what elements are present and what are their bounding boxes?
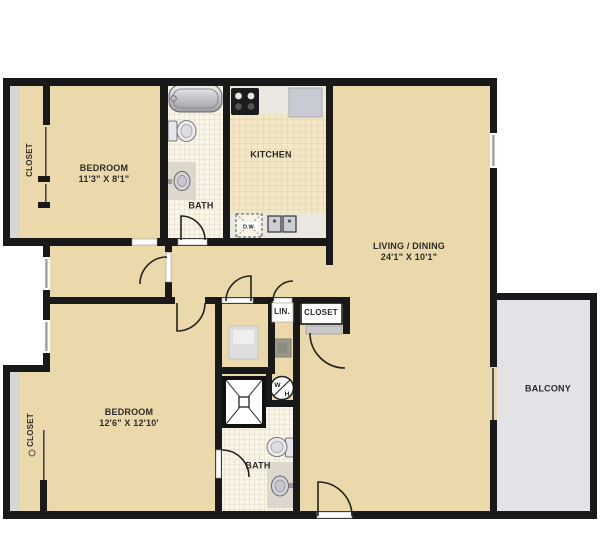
sink-bath2 [267, 462, 293, 508]
balcony-floor [497, 300, 590, 511]
floorplan-page: D.W. W H [0, 0, 600, 540]
bath1-label: BATH [188, 200, 213, 211]
stove [231, 88, 259, 115]
dishwasher: D.W. [236, 214, 262, 237]
living-label: LIVING / DINING 24'1" X 10'1" [373, 241, 445, 264]
toilet-bath2 [267, 438, 294, 458]
toilet-bath1 [168, 121, 196, 142]
living-dims: 24'1" X 10'1" [373, 252, 445, 263]
fridge [289, 88, 322, 117]
living-name: LIVING / DINING [373, 241, 445, 252]
closet2-label: CLOSET [26, 413, 36, 447]
outside-notch [0, 246, 43, 365]
bath2-label: BATH [245, 460, 270, 471]
bedroom1-dims: 11'3" X 8'1" [79, 174, 130, 185]
kitchen-label: KITCHEN [250, 149, 291, 160]
hall-closet-label: CLOSET [304, 308, 338, 318]
closet2-strip [10, 372, 20, 511]
balcony-label: BALCONY [525, 383, 571, 394]
utility-tile [274, 339, 291, 357]
water-heater-w: W [274, 382, 281, 389]
closet1-label: CLOSET [25, 143, 35, 177]
dresser [229, 326, 258, 359]
linen-label: LIN. [274, 307, 290, 317]
water-heater: W H [271, 377, 294, 400]
bedroom2-label: BEDROOM 12'6" X 12'10' [99, 407, 159, 430]
closet1-strip [10, 86, 20, 238]
floorplan-drawing: D.W. W H [0, 0, 600, 540]
dishwasher-label: D.W. [243, 225, 255, 231]
water-heater-h: H [285, 391, 290, 398]
bedroom1-name: BEDROOM [79, 163, 130, 174]
sink-bath1 [167, 162, 196, 200]
bedroom1-label: BEDROOM 11'3" X 8'1" [79, 163, 130, 186]
bedroom2-dims: 12'6" X 12'10' [99, 418, 159, 429]
bedroom2-name: BEDROOM [99, 407, 159, 418]
balcony-slider [492, 368, 494, 420]
bathtub [169, 85, 222, 112]
shower [224, 378, 264, 426]
